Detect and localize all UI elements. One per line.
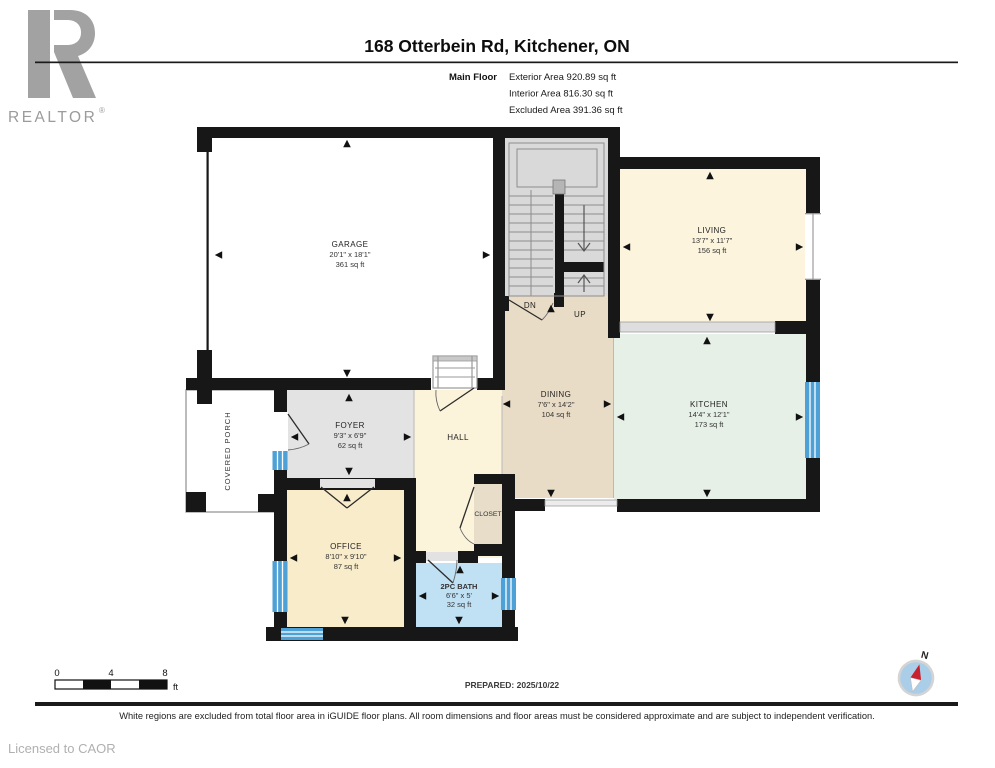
svg-text:32 sq ft: 32 sq ft [447, 600, 473, 609]
scale-tick-8: 8 [162, 668, 167, 679]
compass: N [895, 646, 939, 699]
svg-text:7'6" x 14'2": 7'6" x 14'2" [538, 400, 575, 409]
room-label-foyer: FOYER 9'3" x 6'9" 62 sq ft [334, 421, 367, 450]
stairs-up-label: UP [574, 310, 586, 319]
svg-text:104 sq ft: 104 sq ft [542, 410, 572, 419]
svg-text:62 sq ft: 62 sq ft [338, 441, 364, 450]
entry-steps [433, 356, 477, 388]
floor-label: Main Floor [449, 72, 497, 83]
room-label-hall: HALL [447, 433, 469, 442]
footer-rule [35, 702, 958, 706]
stat-excluded: Excluded Area 391.36 sq ft [509, 105, 623, 116]
covered-porch: COVERED PORCH [186, 390, 275, 512]
floor-plan-page: REALTOR ® 168 Otterbein Rd, Kitchener, O… [0, 0, 995, 768]
page-title: 168 Otterbein Rd, Kitchener, ON [364, 36, 629, 56]
prepared-date: PREPARED: 2025/10/22 [465, 680, 560, 690]
scale-unit: ft [173, 682, 179, 692]
scale-tick-4: 4 [108, 668, 113, 679]
living-window [805, 213, 821, 280]
svg-text:173 sq ft: 173 sq ft [695, 420, 725, 429]
compass-north-label: N [920, 650, 930, 662]
office-bottom-window [281, 628, 323, 640]
svg-text:14'4" x 12'1": 14'4" x 12'1" [688, 410, 729, 419]
svg-text:156 sq ft: 156 sq ft [698, 246, 728, 255]
office-left-window [273, 561, 288, 612]
svg-text:KITCHEN: KITCHEN [690, 400, 728, 409]
kitchen-window [805, 382, 820, 458]
svg-text:DINING: DINING [541, 390, 571, 399]
stat-exterior: Exterior Area 920.89 sq ft [509, 72, 617, 83]
svg-text:GARAGE: GARAGE [332, 240, 369, 249]
svg-text:6'6" x 5': 6'6" x 5' [446, 591, 473, 600]
scale-bar: 0 4 8 ft [54, 668, 178, 692]
svg-text:FOYER: FOYER [335, 421, 365, 430]
room-label-closet: CLOSET [474, 511, 501, 518]
realtor-logo: REALTOR ® [8, 10, 105, 126]
svg-text:361 sq ft: 361 sq ft [336, 260, 366, 269]
bath-window [501, 578, 516, 610]
stat-interior: Interior Area 816.30 sq ft [509, 89, 613, 100]
registered-mark: ® [99, 106, 105, 115]
foyer-window [273, 451, 288, 470]
room-label-porch: COVERED PORCH [223, 411, 232, 490]
floor-plan-canvas: REALTOR ® 168 Otterbein Rd, Kitchener, O… [0, 0, 995, 768]
scale-tick-0: 0 [54, 668, 59, 679]
footer-disclaimer: White regions are excluded from total fl… [119, 711, 875, 721]
realtor-logo-text: REALTOR [8, 109, 97, 126]
svg-text:OFFICE: OFFICE [330, 542, 362, 551]
svg-text:LIVING: LIVING [698, 226, 727, 235]
svg-text:87 sq ft: 87 sq ft [334, 562, 360, 571]
floor-stats: Main Floor Exterior Area 920.89 sq ft In… [449, 72, 623, 116]
room-label-dining: DINING 7'6" x 14'2" 104 sq ft [538, 390, 575, 419]
svg-text:8'10" x 9'10": 8'10" x 9'10" [325, 552, 366, 561]
svg-text:13'7" x 11'7": 13'7" x 11'7" [692, 236, 733, 245]
license-text: Licensed to CAOR [8, 741, 116, 756]
header-rule [35, 62, 958, 64]
svg-text:20'1" x 18'1": 20'1" x 18'1" [329, 250, 370, 259]
stairs-dn-label: DN [524, 301, 536, 310]
svg-text:9'3" x 6'9": 9'3" x 6'9" [334, 431, 367, 440]
svg-text:2PC BATH: 2PC BATH [441, 582, 478, 591]
